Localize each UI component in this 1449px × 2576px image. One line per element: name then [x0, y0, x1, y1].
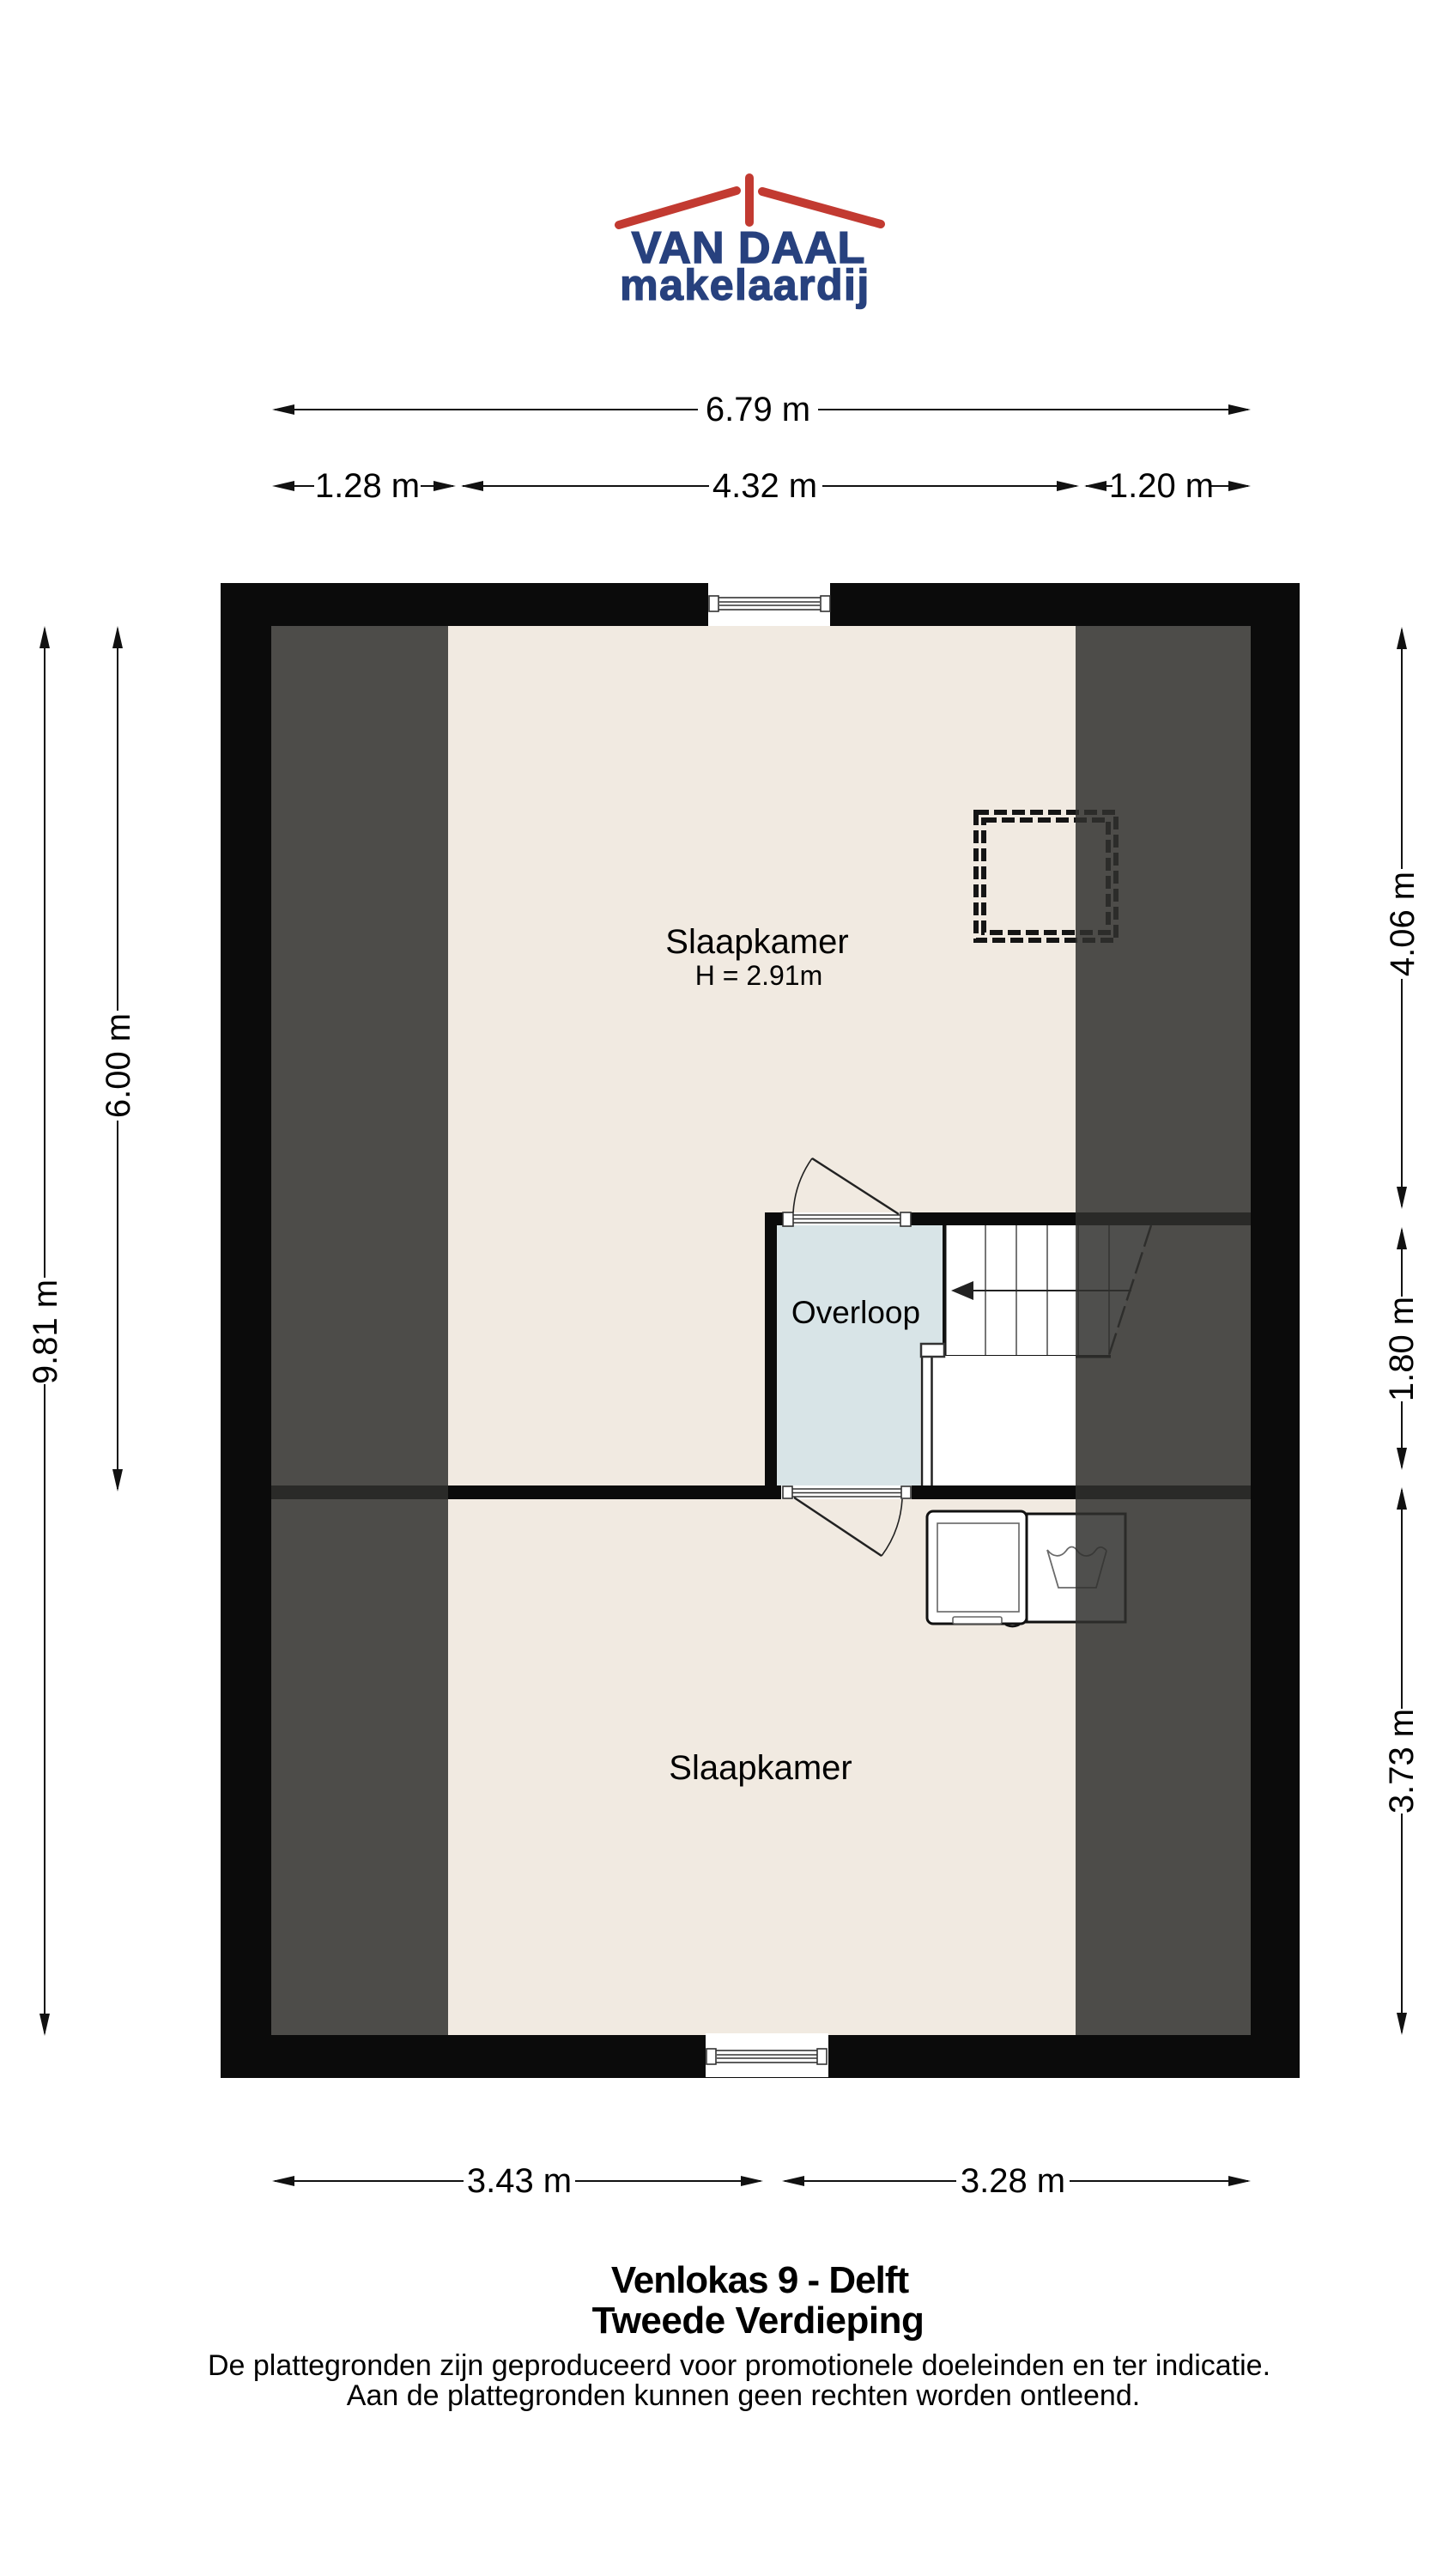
- svg-text:3.73 m: 3.73 m: [1383, 1709, 1421, 1814]
- svg-text:3.28 m: 3.28 m: [961, 2162, 1065, 2200]
- svg-text:De plattegronden zijn geproduc: De plattegronden zijn geproduceerd voor …: [208, 2349, 1270, 2382]
- svg-text:4.32 m: 4.32 m: [712, 467, 817, 505]
- svg-text:Venlokas 9 - Delft: Venlokas 9 - Delft: [611, 2259, 910, 2301]
- svg-text:9.81 m: 9.81 m: [27, 1279, 64, 1384]
- svg-text:Aan de plattegronden kunnen ge: Aan de plattegronden kunnen geen rechten…: [347, 2379, 1140, 2412]
- svg-text:Overloop: Overloop: [791, 1295, 920, 1330]
- svg-text:4.06 m: 4.06 m: [1384, 872, 1422, 976]
- svg-text:3.43 m: 3.43 m: [467, 2162, 572, 2200]
- svg-text:1.20 m: 1.20 m: [1109, 467, 1214, 505]
- svg-text:6.79 m: 6.79 m: [706, 391, 810, 428]
- svg-text:Slaapkamer: Slaapkamer: [669, 1749, 852, 1787]
- svg-text:1.80 m: 1.80 m: [1383, 1297, 1421, 1401]
- svg-text:1.28 m: 1.28 m: [315, 467, 420, 505]
- svg-text:Tweede Verdieping: Tweede Verdieping: [592, 2300, 925, 2342]
- svg-text:H = 2.91m: H = 2.91m: [695, 960, 823, 991]
- svg-text:6.00 m: 6.00 m: [100, 1013, 137, 1118]
- svg-text:makelaardij: makelaardij: [620, 261, 870, 309]
- svg-text:Slaapkamer: Slaapkamer: [665, 923, 848, 961]
